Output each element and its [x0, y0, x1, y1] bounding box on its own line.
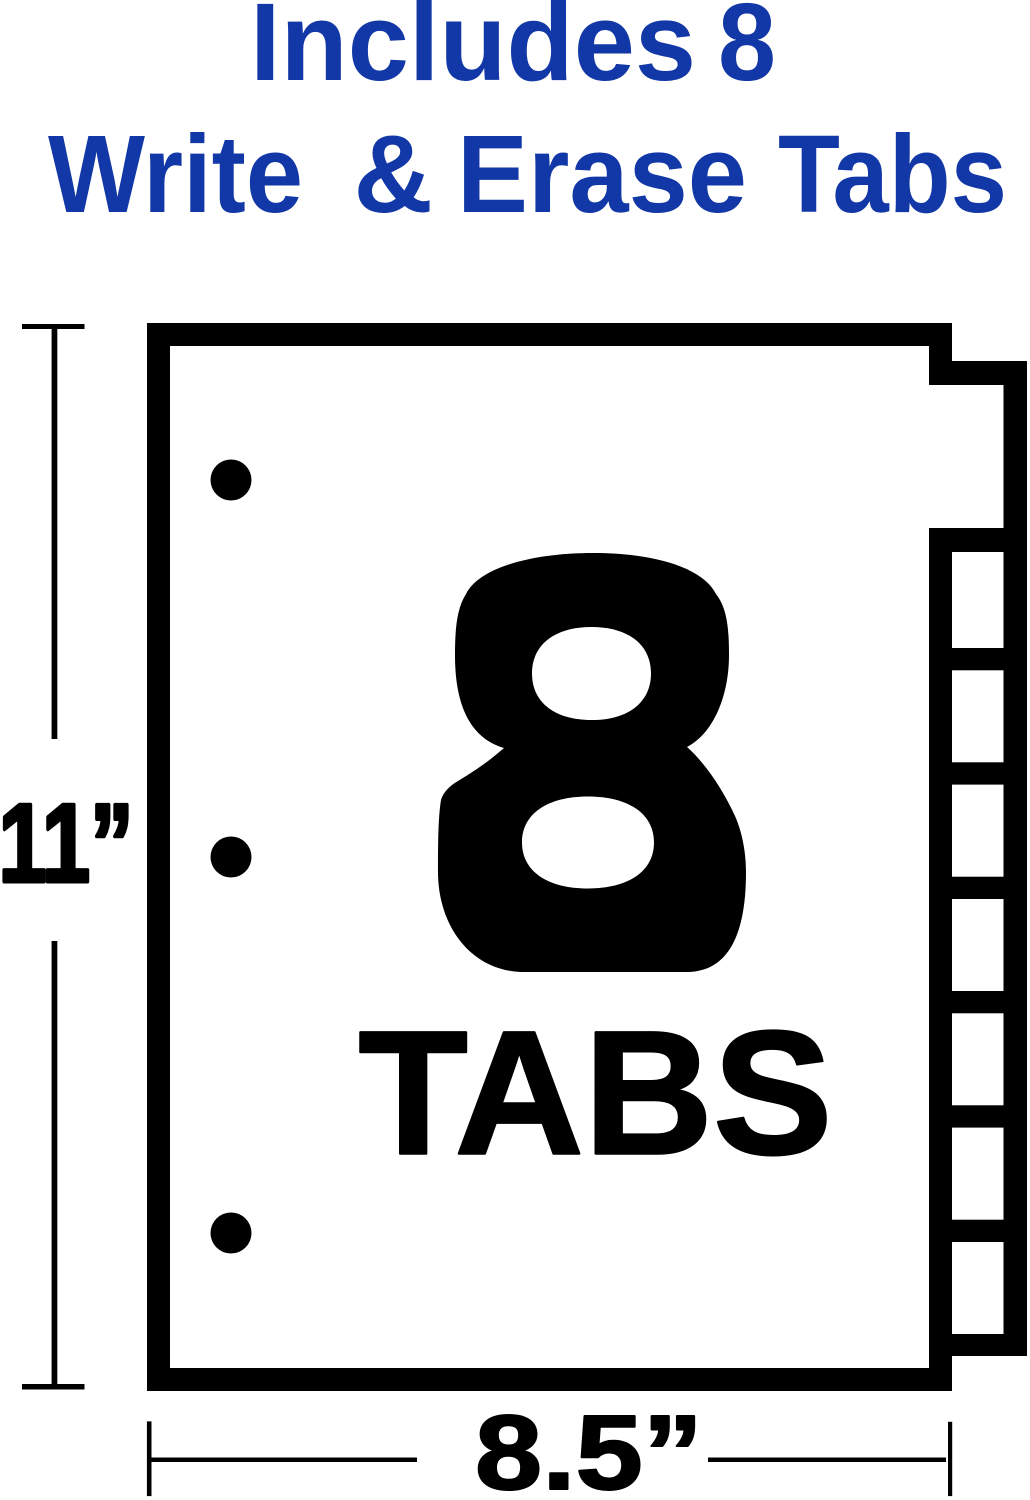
svg-text:TABS: TABS: [359, 996, 833, 1192]
svg-text:&: &: [354, 113, 433, 236]
svg-text:Tabs: Tabs: [778, 113, 1007, 236]
svg-text:Erase: Erase: [457, 113, 747, 236]
svg-text:Includes: Includes: [250, 0, 696, 104]
svg-text:8: 8: [718, 0, 776, 104]
svg-text:8.5”: 8.5”: [475, 1394, 703, 1500]
svg-text:Write: Write: [48, 113, 303, 236]
svg-text:11”: 11”: [0, 782, 134, 906]
